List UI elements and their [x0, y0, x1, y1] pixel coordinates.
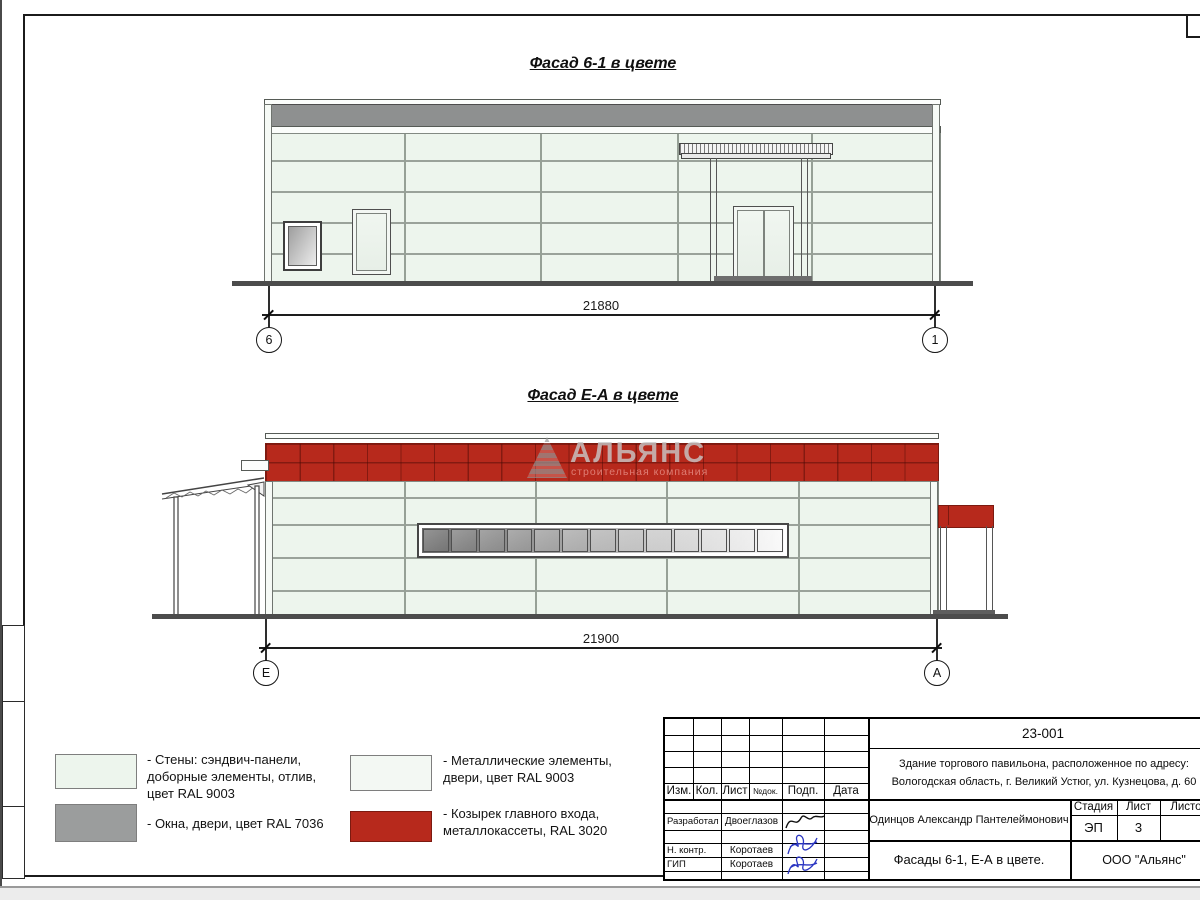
corner-trim [930, 481, 938, 619]
ground-line [232, 281, 973, 286]
stamp-line [665, 830, 868, 831]
canopy-post [986, 526, 993, 613]
panel-joint-h [267, 590, 935, 592]
facade1-parapet-band [264, 104, 939, 128]
panel-joint-v [677, 134, 679, 282]
stamp-name: Коротаев [721, 857, 782, 871]
entrance-canopy-red [938, 505, 994, 528]
sheet-label: Лист [1117, 799, 1160, 815]
facade2-title: Фасад Е-А в цвете [420, 387, 786, 405]
canopy-post [801, 158, 808, 283]
bottom-edge-bar [0, 886, 1200, 900]
lean-to-canopy [160, 468, 272, 620]
sheet-title: Фасады 6-1, Е-А в цвете. [868, 840, 1070, 879]
sheet-value: 3 [1117, 815, 1160, 840]
panel-joint-h [267, 497, 935, 499]
stamp-name: Двоеглазов [721, 813, 782, 830]
dimension-line [262, 314, 940, 316]
legend-text-canopy: - Козырек главного входа, металлокассеты… [443, 805, 653, 839]
extension-line [936, 619, 938, 661]
title-block: Изм. Кол. Лист №док. Подп. Дата Разработ… [663, 717, 1200, 881]
panel-joint-v [404, 134, 406, 282]
side-stamp-cell [2, 701, 25, 810]
stamp-col-kol: Кол. [693, 783, 721, 799]
object-line2: Вологодская область, г. Великий Устюг, у… [892, 774, 1197, 791]
canopy-panel-joint [948, 506, 949, 525]
axis-label: А [933, 666, 941, 680]
object-description: Здание торгового павильона, расположенно… [872, 750, 1200, 797]
panel-joint-v [404, 482, 406, 616]
drawing-sheet: Фасад 6-1 в цвете 21880 6 1 Фасад Е-А в … [0, 0, 1200, 900]
stage-label: Стадия [1070, 799, 1117, 815]
panel-joint-h [266, 191, 937, 193]
facade1-entrance-double-door [733, 206, 794, 283]
format-corner-box [1186, 14, 1200, 38]
extension-line [268, 286, 270, 327]
axis-marker-1: 1 [922, 327, 948, 353]
stage-value: ЭП [1070, 815, 1117, 840]
sheets-label: Листов [1160, 799, 1200, 815]
sheets-value [1160, 815, 1200, 840]
stamp-line [665, 871, 868, 872]
stamp-line [665, 767, 868, 768]
axis-marker-e: Е [253, 660, 279, 686]
stamp-line [665, 799, 868, 801]
signature-blue [783, 851, 821, 879]
corner-trim [264, 104, 272, 285]
legend-swatch-walls [55, 754, 137, 789]
watermark-tagline: строительная компания [571, 466, 708, 478]
stamp-col-ndoc: №док. [749, 783, 782, 799]
panel-joint-v [540, 134, 542, 282]
stamp-line [665, 735, 868, 736]
axis-marker-a: А [924, 660, 950, 686]
facade1-dimension-value: 21880 [501, 298, 701, 313]
facade1-side-door [352, 209, 391, 275]
door-leaf [764, 210, 791, 279]
axis-label: 6 [266, 333, 273, 347]
canopy-post [940, 526, 947, 613]
facade2-dimension-value: 21900 [501, 631, 701, 646]
door-leaf [737, 210, 764, 279]
axis-label: Е [262, 666, 270, 680]
facade1-window [283, 221, 322, 271]
window-glass [288, 226, 317, 266]
stamp-role: Разработал [667, 813, 721, 830]
axis-label: 1 [932, 333, 939, 347]
extension-line [265, 619, 267, 661]
corner-trim [932, 104, 940, 285]
facade2-window-band [417, 523, 789, 558]
facade1-title: Фасад 6-1 в цвете [420, 55, 786, 73]
canopy-post [710, 158, 717, 283]
panel-joint-v [798, 482, 800, 616]
window-band-glazing [422, 528, 784, 553]
approver-name: Одинцов Александр Пантелеймонович [868, 799, 1070, 840]
legend-text-windows: - Окна, двери, цвет RAL 7036 [147, 815, 357, 832]
object-line1: Здание торгового павильона, расположенно… [899, 756, 1189, 773]
stamp-col-data: Дата [824, 783, 868, 799]
ground-line [152, 614, 1008, 619]
stamp-col-list: Лист [721, 783, 749, 799]
legend-swatch-windows [55, 804, 137, 842]
legend-swatch-metal [350, 755, 432, 791]
stamp-line [868, 748, 1200, 749]
axis-marker-6: 6 [256, 327, 282, 353]
doc-number: 23-001 [868, 719, 1200, 748]
company-name: ООО "Альянс" [1070, 840, 1200, 879]
legend-swatch-canopy [350, 811, 432, 842]
stamp-name: Коротаев [721, 843, 782, 857]
side-stamp-cell [2, 625, 25, 705]
stamp-col-izm: Изм. [665, 783, 693, 799]
facade1-canopy-fascia [681, 153, 831, 159]
side-stamp-cell [2, 806, 25, 879]
stamp-line [665, 751, 868, 752]
stamp-role: ГИП [667, 857, 721, 871]
extension-line [934, 286, 936, 327]
stamp-col-podp: Подп. [782, 783, 824, 799]
door-leaf [356, 213, 387, 271]
legend-text-walls: - Стены: сэндвич-панели, доборные элемен… [147, 751, 347, 802]
stamp-role: Н. контр. [667, 843, 721, 857]
panel-joint-h [266, 160, 937, 162]
legend-text-metal: - Металлические элементы, двери, цвет RA… [443, 752, 653, 786]
dimension-line [259, 647, 942, 649]
